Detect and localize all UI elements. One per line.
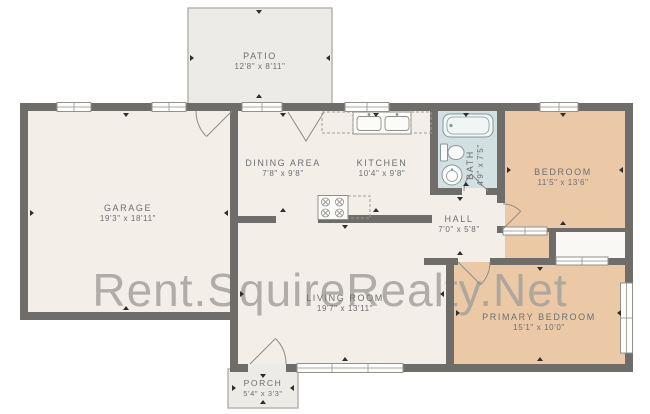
room-dims: 10'4" x 9'8" xyxy=(357,169,408,178)
room-name: PATIO xyxy=(234,51,285,61)
floor-plan-canvas: Rent.SquireRealty.Net xyxy=(0,0,650,414)
primary-closet-sliding-door xyxy=(556,257,608,265)
room-name: BEDROOM xyxy=(534,167,592,177)
room-label-living: LIVING ROOM 19'7" x 13'11" xyxy=(306,293,384,313)
garage-window-2 xyxy=(152,103,186,112)
room-dims: 7'0" x 5'8" xyxy=(438,225,480,234)
room-name: PORCH xyxy=(243,378,282,388)
room-label-primary: PRIMARY BEDROOM 15'1" x 10'0" xyxy=(482,312,596,332)
room-label-patio: PATIO 12'8" x 8'11" xyxy=(234,51,285,71)
bath-sink-icon xyxy=(442,165,462,185)
primary-bedroom-window xyxy=(621,283,633,353)
room-dims: 19'7" x 13'11" xyxy=(306,304,384,313)
room-name: HALL xyxy=(438,214,480,224)
bedroom-window xyxy=(540,103,578,112)
room-dims: 19'3" x 18'11" xyxy=(100,214,156,223)
room-dims: 15'1" x 10'0" xyxy=(482,323,596,332)
stove-icon xyxy=(318,196,348,220)
room-dims: 12'8" x 8'11" xyxy=(234,62,285,71)
bathtub-icon xyxy=(443,114,493,137)
room-label-kitchen: KITCHEN 10'4" x 9'8" xyxy=(357,158,408,178)
room-dims: 11'5" x 13'6" xyxy=(534,178,592,187)
room-label-garage: GARAGE 19'3" x 18'11" xyxy=(100,203,156,223)
room-name: LIVING ROOM xyxy=(306,293,384,303)
room-label-bedroom: BEDROOM 11'5" x 13'6" xyxy=(534,167,592,187)
kitchen-sink-icon xyxy=(353,112,411,134)
living-room-window xyxy=(297,364,403,373)
room-name: KITCHEN xyxy=(357,158,408,168)
patio-sliding-door xyxy=(242,103,282,112)
room-dims: 5'4" x 3'3" xyxy=(243,389,282,398)
room-name: PRIMARY BEDROOM xyxy=(482,312,596,322)
room-label-porch: PORCH 5'4" x 3'3" xyxy=(243,378,282,398)
bedroom-closet-sliding-door xyxy=(503,227,547,235)
room-name: BATH xyxy=(465,144,475,186)
primary-closet-floor xyxy=(556,232,625,258)
room-name: GARAGE xyxy=(100,203,156,213)
room-label-dining: DINING AREA 7'8" x 9'8" xyxy=(245,158,321,178)
floor-plan: Rent.SquireRealty.Net xyxy=(0,0,650,414)
room-dims: 4'9" x 7'5" xyxy=(476,144,485,186)
room-name: DINING AREA xyxy=(245,158,321,168)
room-dims: 7'8" x 9'8" xyxy=(245,169,321,178)
room-label-hall: HALL 7'0" x 5'8" xyxy=(438,214,480,234)
toilet-icon xyxy=(441,144,465,161)
porch-door-opening xyxy=(248,364,286,373)
kitchen-window xyxy=(345,103,389,112)
garage-window xyxy=(57,103,91,112)
room-label-bath: BATH 4'9" x 7'5" xyxy=(465,144,485,186)
